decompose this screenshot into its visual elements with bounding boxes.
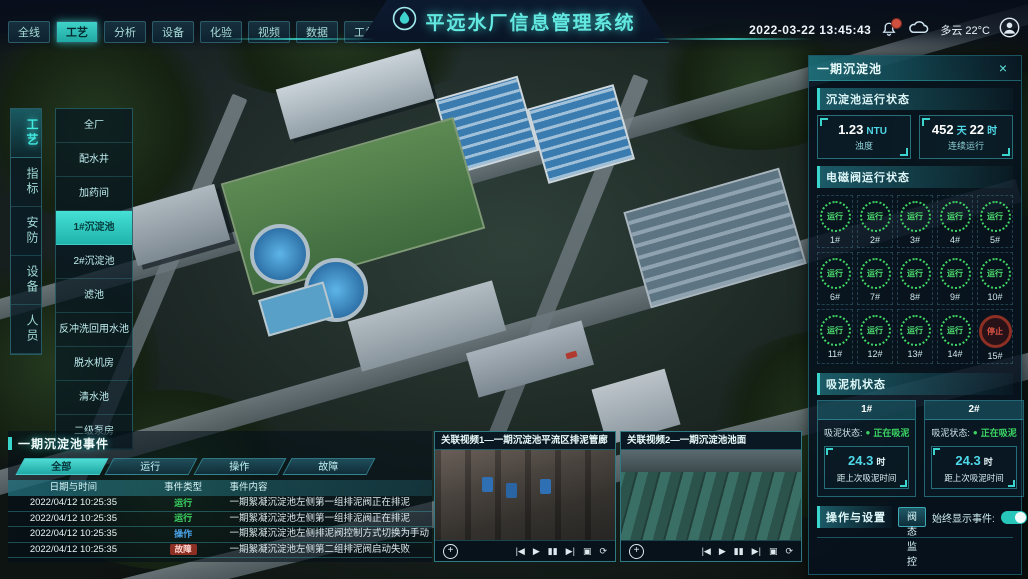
mud-machine-cards: 1# 吸泥状态: ● 正在吸泥 24.3时 距上次吸泥时间 2# 吸泥状态: (809, 400, 1021, 497)
submenu-item[interactable]: 清水池 (56, 381, 132, 415)
events-filter-tab[interactable]: 故障 (282, 458, 375, 475)
table-row[interactable]: 2022/04/12 10:25:35 故障 一期絮凝沉淀池左侧第二组排泥阀启动… (8, 543, 432, 559)
close-icon[interactable]: × (993, 60, 1013, 76)
valve-status-ring: 运行 (860, 258, 891, 289)
stat-value: 452天22时 (932, 122, 1000, 137)
submenu-item[interactable]: 全厂 (56, 109, 132, 143)
valve-status-ring: 运行 (900, 315, 931, 346)
video-title: 关联视频2—一期沉淀池池面 (621, 432, 801, 450)
valve-status-ring: 运行 (940, 258, 971, 289)
valve-status-ring: 运行 (980, 201, 1011, 232)
nav-tab[interactable]: 工艺 (56, 21, 98, 43)
video-feed[interactable] (435, 450, 615, 540)
valve-status-ring: 运行 (900, 258, 931, 289)
loop-icon[interactable]: ⟳ (785, 547, 793, 556)
valve-id: 7# (870, 292, 880, 302)
video-controls: + |◀ ▶ ▮▮ ▶| ▣ ⟳ (621, 540, 801, 561)
valve-id: 12# (867, 349, 882, 359)
weather-cloud-icon (907, 20, 931, 41)
side-tab-bar: 工艺 指标 安防 设备 人员 (10, 108, 42, 355)
valve-status-ring: 运行 (820, 201, 851, 232)
valve-indicator[interactable]: 运行 13# (897, 309, 933, 364)
mud-timer-label: 距上次吸泥时间 (825, 472, 908, 484)
valve-status-ring: 运行 (980, 258, 1011, 289)
events-table-header: 日期与时间 事件类型 事件内容 (8, 480, 432, 496)
nav-tab[interactable]: 设备 (152, 21, 194, 43)
col-header-content: 事件内容 (227, 480, 432, 496)
event-type-cell: 运行 (139, 511, 228, 527)
valve-id: 5# (990, 235, 1000, 245)
dashboard: 全线 工艺 分析 设备 化验 视频 数据 工单 系统 平远水厂信息管理系统 (0, 0, 1028, 579)
run-status-stats: 1.23NTU 浊度 452天22时 连续运行 (809, 115, 1021, 159)
submenu-item[interactable]: 1#沉淀池 (56, 211, 132, 245)
title-accent-bar (8, 437, 12, 450)
submenu-item[interactable]: 加药间 (56, 177, 132, 211)
valve-indicator[interactable]: 停止 15# (977, 309, 1013, 364)
mud-machine-status: 吸泥状态: ● 正在吸泥 (818, 420, 915, 441)
ptz-dpad-icon[interactable]: + (629, 544, 644, 559)
submenu-item[interactable]: 脱水机房 (56, 347, 132, 381)
video-title: 关联视频1—一期沉淀池平流区排泥管廊 (435, 432, 615, 450)
event-content: 一期絮凝沉淀池左侧第一组排泥阀正在排泥 (227, 496, 432, 511)
loop-icon[interactable]: ⟳ (599, 547, 607, 556)
valve-indicator[interactable]: 运行 10# (977, 252, 1013, 305)
col-header-type: 事件类型 (139, 480, 228, 496)
event-content: 一期絮凝沉淀池左侧第一组排泥阀正在排泥 (227, 512, 432, 527)
circular-pool (250, 224, 310, 284)
valve-status-ring: 运行 (940, 201, 971, 232)
side-tab[interactable]: 工艺 (11, 109, 41, 158)
event-type-cell: 故障 (139, 543, 228, 558)
valve-id: 15# (987, 351, 1002, 361)
play-icon[interactable]: ▶ (533, 547, 540, 556)
valve-status-ring: 运行 (860, 201, 891, 232)
ops-settings-row: 操作与设置 阀态监控 始终显示事件: (809, 506, 1021, 528)
section-valves-header: 电磁阀运行状态 (817, 166, 1013, 188)
video-panel: 关联视频2—一期沉淀池池面 + |◀ ▶ ▮▮ ▶| ▣ ⟳ (620, 431, 802, 562)
events-tabs: 全部 运行 操作 故障 (20, 458, 432, 475)
valve-indicator[interactable]: 运行 3# (897, 195, 933, 248)
status-dot-icon: ● (973, 428, 978, 437)
stat-box: 1.23NTU 浊度 (817, 115, 911, 159)
always-show-events-toggle[interactable] (1001, 511, 1027, 524)
mud-timer-value: 24.3时 (932, 452, 1015, 470)
valve-indicator[interactable]: 运行 8# (897, 252, 933, 305)
events-filter-tab[interactable]: 运行 (104, 458, 197, 475)
submenu-item[interactable]: 配水井 (56, 143, 132, 177)
app-title: 平远水厂信息管理系统 (425, 8, 635, 35)
events-filter-tab[interactable]: 全部 (15, 458, 108, 475)
video-feed[interactable] (621, 450, 801, 540)
valve-id: 4# (950, 235, 960, 245)
section-run-status-header: 沉淀池运行状态 (817, 88, 1013, 110)
skip-back-icon[interactable]: |◀ (702, 547, 711, 556)
events-panel: 一期沉淀池事件 全部 运行 操作 故障 日期与时间 事件类型 事件内容 2022… (8, 431, 432, 562)
skip-forward-icon[interactable]: ▶| (752, 547, 761, 556)
stat-box: 452天22时 连续运行 (919, 115, 1013, 159)
mud-machine-id: 1# (818, 401, 915, 420)
valve-indicator[interactable]: 运行 7# (857, 252, 893, 305)
valve-id: 2# (870, 235, 880, 245)
notification-badge (891, 18, 902, 29)
events-table-body: 2022/04/12 10:25:35 运行 一期絮凝沉淀池左侧第一组排泥阀正在… (8, 496, 432, 558)
top-bar: 全线 工艺 分析 设备 化验 视频 数据 工单 系统 平远水厂信息管理系统 (0, 0, 1028, 52)
event-content: 一期絮凝沉淀池左侧第二组排泥阀启动失败 (227, 543, 432, 558)
pause-icon[interactable]: ▮▮ (734, 547, 744, 556)
notification-bell-icon[interactable] (880, 21, 898, 39)
tank-block (623, 168, 806, 309)
weather-text: 多云 22°C (940, 22, 990, 38)
table-row[interactable]: 2022/04/12 10:25:35 运行 一期絮凝沉淀池左侧第一组排泥阀正在… (8, 496, 432, 512)
mud-timer-box: 24.3时 距上次吸泥时间 (931, 446, 1016, 489)
event-time: 2022/04/12 10:25:35 (8, 512, 139, 527)
event-content: 一期絮凝沉淀池左侧排泥阀控制方式切换为手动 (227, 527, 432, 542)
sedimentation-tank (527, 84, 635, 184)
side-tab[interactable]: 安防 (11, 207, 41, 256)
fullscreen-icon[interactable]: ▣ (769, 547, 778, 556)
mud-timer-label: 距上次吸泥时间 (932, 472, 1015, 484)
valve-status-ring: 运行 (820, 258, 851, 289)
detail-panel: 一期沉淀池 × 沉淀池运行状态 1.23NTU 浊度 452天22时 连续运行 (808, 55, 1022, 575)
logo-icon (392, 6, 417, 36)
status-dot-icon: ● (866, 428, 871, 437)
side-tab[interactable]: 人员 (11, 305, 41, 354)
valve-indicator[interactable]: 运行 5# (977, 195, 1013, 248)
stat-label: 连续运行 (948, 139, 984, 152)
valve-indicator[interactable]: 运行 2# (857, 195, 893, 248)
submenu-item[interactable]: 反冲洗回用水池 (56, 313, 132, 347)
event-type-badge: 运行 (174, 496, 192, 511)
video-panels: 关联视频1—一期沉淀池平流区排泥管廊 + |◀ ▶ ▮▮ ▶| ▣ ⟳ 关联视频… (434, 431, 802, 562)
datetime: 2022-03-22 13:45:43 (749, 23, 871, 37)
side-tab[interactable]: 设备 (11, 256, 41, 305)
nav-tab[interactable]: 全线 (8, 21, 50, 43)
skip-back-icon[interactable]: |◀ (516, 547, 525, 556)
event-type-cell: 操作 (139, 527, 228, 543)
header-decor-line (216, 38, 376, 40)
valve-indicator[interactable]: 运行 11# (817, 309, 853, 364)
mud-machine-card: 1# 吸泥状态: ● 正在吸泥 24.3时 距上次吸泥时间 (817, 400, 916, 497)
valve-indicator[interactable]: 运行 12# (857, 309, 893, 364)
valve-id: 13# (907, 349, 922, 359)
valve-id: 6# (830, 292, 840, 302)
section-mud-header: 吸泥机状态 (817, 373, 1013, 395)
valve-indicator[interactable]: 运行 14# (937, 309, 973, 364)
panel-title: 一期沉淀池 (817, 60, 882, 77)
events-title-row: 一期沉淀池事件 (8, 431, 432, 454)
stat-label: 浊度 (855, 139, 873, 152)
valve-id: 1# (830, 235, 840, 245)
video-panel: 关联视频1—一期沉淀池平流区排泥管廊 + |◀ ▶ ▮▮ ▶| ▣ ⟳ (434, 431, 616, 562)
submenu-item[interactable]: 2#沉淀池 (56, 245, 132, 279)
user-avatar[interactable] (999, 17, 1020, 43)
mud-timer-value: 24.3时 (825, 452, 908, 470)
valve-id: 9# (950, 292, 960, 302)
mud-machine-status: 吸泥状态: ● 正在吸泥 (925, 420, 1022, 441)
event-time: 2022/04/12 10:25:35 (8, 496, 139, 511)
app-title-bar: 平远水厂信息管理系统 (359, 0, 669, 43)
play-icon[interactable]: ▶ (719, 547, 726, 556)
event-type-badge: 故障 (170, 544, 197, 555)
event-type-cell: 运行 (139, 496, 228, 512)
valve-status-ring: 运行 (900, 201, 931, 232)
valve-status-ring: 停止 (979, 315, 1012, 348)
event-time: 2022/04/12 10:25:35 (8, 543, 139, 558)
valve-indicator[interactable]: 运行 9# (937, 252, 973, 305)
mud-machine-card: 2# 吸泥状态: ● 正在吸泥 24.3时 距上次吸泥时间 (924, 400, 1023, 497)
valve-status-ring: 运行 (940, 315, 971, 346)
valve-grid: 运行 1# 运行 2# 运行 3# 运行 4# (809, 193, 1021, 366)
toggle-knob (1015, 512, 1026, 523)
mud-machine-id: 2# (925, 401, 1022, 420)
always-show-events-label: 始终显示事件: (932, 510, 995, 525)
side-tab[interactable]: 指标 (11, 158, 41, 207)
pause-icon[interactable]: ▮▮ (548, 547, 558, 556)
panel-title-bar: 一期沉淀池 × (809, 56, 1021, 81)
header-status-area: 2022-03-22 13:45:43 多云 22°C (749, 17, 1020, 43)
valve-indicator[interactable]: 运行 6# (817, 252, 853, 305)
valve-status-ring: 运行 (820, 315, 851, 346)
mud-timer-box: 24.3时 距上次吸泥时间 (824, 446, 909, 489)
valve-id: 8# (910, 292, 920, 302)
event-type-badge: 操作 (174, 527, 192, 542)
event-type-badge: 运行 (174, 511, 192, 526)
fullscreen-icon[interactable]: ▣ (583, 547, 592, 556)
col-header-time: 日期与时间 (8, 480, 139, 496)
valve-status-ring: 运行 (860, 315, 891, 346)
valve-monitor-button[interactable]: 阀态监控 (898, 507, 926, 527)
table-row[interactable]: 2022/04/12 10:25:35 运行 一期絮凝沉淀池左侧第一组排泥阀正在… (8, 512, 432, 528)
valve-id: 3# (910, 235, 920, 245)
ptz-dpad-icon[interactable]: + (443, 544, 458, 559)
valve-id: 14# (947, 349, 962, 359)
valve-indicator[interactable]: 运行 4# (937, 195, 973, 248)
skip-forward-icon[interactable]: ▶| (566, 547, 575, 556)
submenu-item[interactable]: 滤池 (56, 279, 132, 313)
events-filter-tab[interactable]: 操作 (193, 458, 286, 475)
valve-indicator[interactable]: 运行 1# (817, 195, 853, 248)
nav-tab[interactable]: 分析 (104, 21, 146, 43)
table-row[interactable]: 2022/04/12 10:25:35 操作 一期絮凝沉淀池左侧排泥阀控制方式切… (8, 527, 432, 543)
valve-id: 10# (987, 292, 1002, 302)
stat-value: 1.23NTU (838, 122, 890, 137)
section-ops-header: 操作与设置 (817, 506, 892, 528)
video-controls: + |◀ ▶ ▮▮ ▶| ▣ ⟳ (435, 540, 615, 561)
event-time: 2022/04/12 10:25:35 (8, 527, 139, 542)
valve-id: 11# (828, 349, 842, 359)
events-title: 一期沉淀池事件 (18, 435, 109, 452)
process-submenu: 全厂 配水井 加药间 1#沉淀池 2#沉淀池 滤池 反冲洗回用水池 脱水机房 清… (55, 108, 133, 450)
